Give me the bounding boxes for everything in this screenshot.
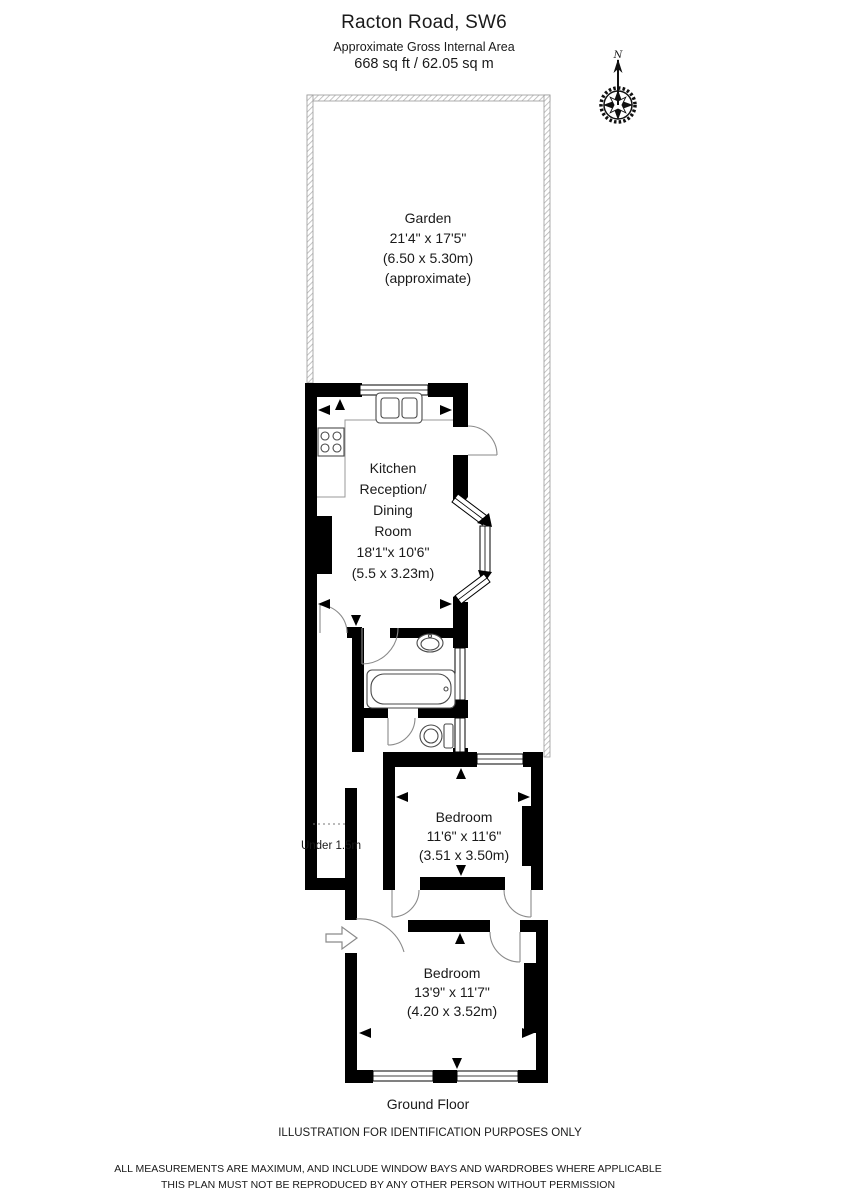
entrance-arrow-icon	[326, 927, 357, 949]
plan-area-value: 668 sq ft / 62.05 sq m	[354, 56, 493, 72]
bedroom2-dims-metric: (4.20 x 3.52m)	[407, 1002, 497, 1021]
compass-north-label: N	[614, 50, 623, 61]
bedroom2-window-left	[373, 1071, 433, 1081]
kitchen-sink	[376, 393, 422, 423]
kitchen-name-line: Dining	[352, 500, 434, 521]
bedroom1-dims-metric: (3.51 x 3.50m)	[419, 846, 509, 865]
bedroom1-dims-imperial: 11'6" x 11'6"	[419, 827, 509, 846]
garden-note: (approximate)	[383, 268, 473, 288]
disclaimer-text: ILLUSTRATION FOR IDENTIFICATION PURPOSES…	[278, 1127, 582, 1139]
bedroom1-window	[477, 754, 523, 764]
bedroom1-door-left	[392, 890, 419, 917]
bedroom1-label: Bedroom 11'6" x 11'6" (3.51 x 3.50m)	[419, 808, 509, 865]
plan-title: Racton Road, SW6	[341, 12, 507, 34]
washbasin	[417, 634, 443, 652]
wc-window	[455, 718, 465, 752]
floor-label: Ground Floor	[387, 1096, 469, 1112]
bedroom1-name: Bedroom	[419, 808, 509, 827]
garden-door	[468, 426, 497, 455]
kitchen-dims-metric: (5.5 x 3.23m)	[352, 563, 434, 584]
plan-subtitle: Approximate Gross Internal Area	[333, 40, 514, 54]
kitchen-name-line: Reception/	[352, 479, 434, 500]
bedroom2-name: Bedroom	[407, 964, 497, 983]
bathtub	[367, 670, 455, 708]
under-stairs-label: Under 1.5m	[301, 839, 361, 854]
kitchen-dims-imperial: 18'1"x 10'6"	[352, 542, 434, 563]
legal-line-2: THIS PLAN MUST NOT BE REPRODUCED BY ANY …	[161, 1177, 615, 1193]
kitchen-name-line: Room	[352, 521, 434, 542]
toilet	[420, 724, 453, 748]
garden-dims-metric: (6.50 x 5.30m)	[383, 248, 473, 268]
garden-label: Garden 21'4" x 17'5" (6.50 x 5.30m) (app…	[383, 208, 473, 288]
kitchen-label: Kitchen Reception/ Dining Room 18'1"x 10…	[352, 458, 434, 584]
floorplan-page: Racton Road, SW6 Approximate Gross Inter…	[0, 0, 848, 1200]
bedroom1-door-right	[504, 890, 531, 917]
legal-line-1: ALL MEASUREMENTS ARE MAXIMUM, AND INCLUD…	[114, 1161, 661, 1177]
under-stairs-line2: 1.5m	[335, 840, 361, 852]
bedroom2-label: Bedroom 13'9" x 11'7" (4.20 x 3.52m)	[407, 964, 497, 1021]
bedroom2-window-right	[457, 1071, 518, 1081]
bay-window-lower	[455, 574, 490, 604]
bay-window-middle	[480, 526, 490, 572]
bedroom2-dims-imperial: 13'9" x 11'7"	[407, 983, 497, 1002]
bedroom2-door	[490, 932, 520, 962]
kitchen-hall-door	[320, 605, 347, 633]
bathroom-window	[455, 648, 465, 700]
hob	[318, 428, 344, 456]
under-stairs-line1: Under	[301, 840, 332, 852]
garden-name: Garden	[383, 208, 473, 228]
front-door	[356, 919, 404, 952]
compass-rose-icon	[601, 59, 635, 122]
wc-door	[388, 718, 415, 745]
garden-dims-imperial: 21'4" x 17'5"	[383, 228, 473, 248]
kitchen-name-line: Kitchen	[352, 458, 434, 479]
garden-boundary	[307, 95, 550, 757]
